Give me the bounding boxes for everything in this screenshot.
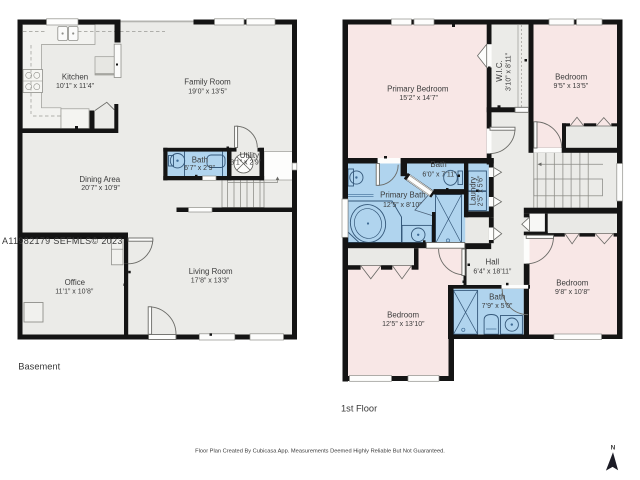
svg-text:Bath: Bath (430, 160, 446, 169)
svg-text:6’7” x 2’9”: 6’7” x 2’9” (184, 165, 215, 172)
svg-text:9’8” x 10’8”: 9’8” x 10’8” (555, 289, 590, 296)
svg-text:12’5” x 13’10”: 12’5” x 13’10” (382, 321, 425, 328)
svg-text:Dining Area: Dining Area (79, 175, 120, 184)
svg-text:1st Floor: 1st Floor (341, 404, 377, 414)
svg-text:Bath: Bath (489, 292, 505, 301)
svg-text:19’0” x 13’5”: 19’0” x 13’5” (188, 88, 227, 95)
svg-text:Family Room: Family Room (184, 78, 231, 87)
svg-text:Primary Bedroom: Primary Bedroom (387, 85, 449, 94)
svg-text:17’8” x 13’3”: 17’8” x 13’3” (191, 278, 230, 285)
svg-text:Bedroom: Bedroom (387, 310, 419, 319)
svg-text:15’2” x 14’7”: 15’2” x 14’7” (399, 95, 438, 102)
svg-text:Bath: Bath (192, 155, 208, 164)
svg-text:9’5” x 13’5”: 9’5” x 13’5” (553, 83, 588, 90)
svg-text:12’5” x 8’10”: 12’5” x 8’10” (383, 202, 422, 209)
svg-text:6’4” x 18’11”: 6’4” x 18’11” (473, 269, 512, 276)
svg-text:Laundry: Laundry (469, 177, 478, 206)
svg-text:11’1” x 10’8”: 11’1” x 10’8” (55, 289, 94, 296)
svg-text:3’10” x 8’11”: 3’10” x 8’11” (506, 52, 513, 91)
svg-text:A11982179 SEFMLS© 2023: A11982179 SEFMLS© 2023 (2, 236, 123, 246)
svg-text:3’1” x 2’9”: 3’1” x 2’9” (230, 159, 261, 166)
svg-text:2’5” x 5’6”: 2’5” x 5’6” (478, 175, 485, 206)
svg-text:Office: Office (65, 278, 86, 287)
svg-text:Basement: Basement (18, 362, 60, 372)
svg-text:10’1” x 11’4”: 10’1” x 11’4” (56, 83, 95, 90)
svg-text:N: N (611, 445, 616, 452)
svg-text:W.I.C.: W.I.C. (495, 60, 504, 81)
svg-text:Hall: Hall (486, 257, 500, 266)
svg-text:Bedroom: Bedroom (555, 72, 587, 81)
svg-text:Living Room: Living Room (189, 267, 233, 276)
svg-text:Kitchen: Kitchen (62, 73, 88, 82)
svg-text:6’0” x 7’11”: 6’0” x 7’11” (422, 171, 457, 178)
svg-text:7’9” x 5’0”: 7’9” x 5’0” (482, 303, 513, 310)
svg-text:Floor Plan Created By Cubicasa: Floor Plan Created By Cubicasa App. Meas… (195, 449, 445, 455)
svg-text:Bedroom: Bedroom (556, 278, 588, 287)
svg-text:Primary Bath: Primary Bath (380, 191, 426, 200)
svg-text:20’7” x 10’9”: 20’7” x 10’9” (81, 185, 120, 192)
